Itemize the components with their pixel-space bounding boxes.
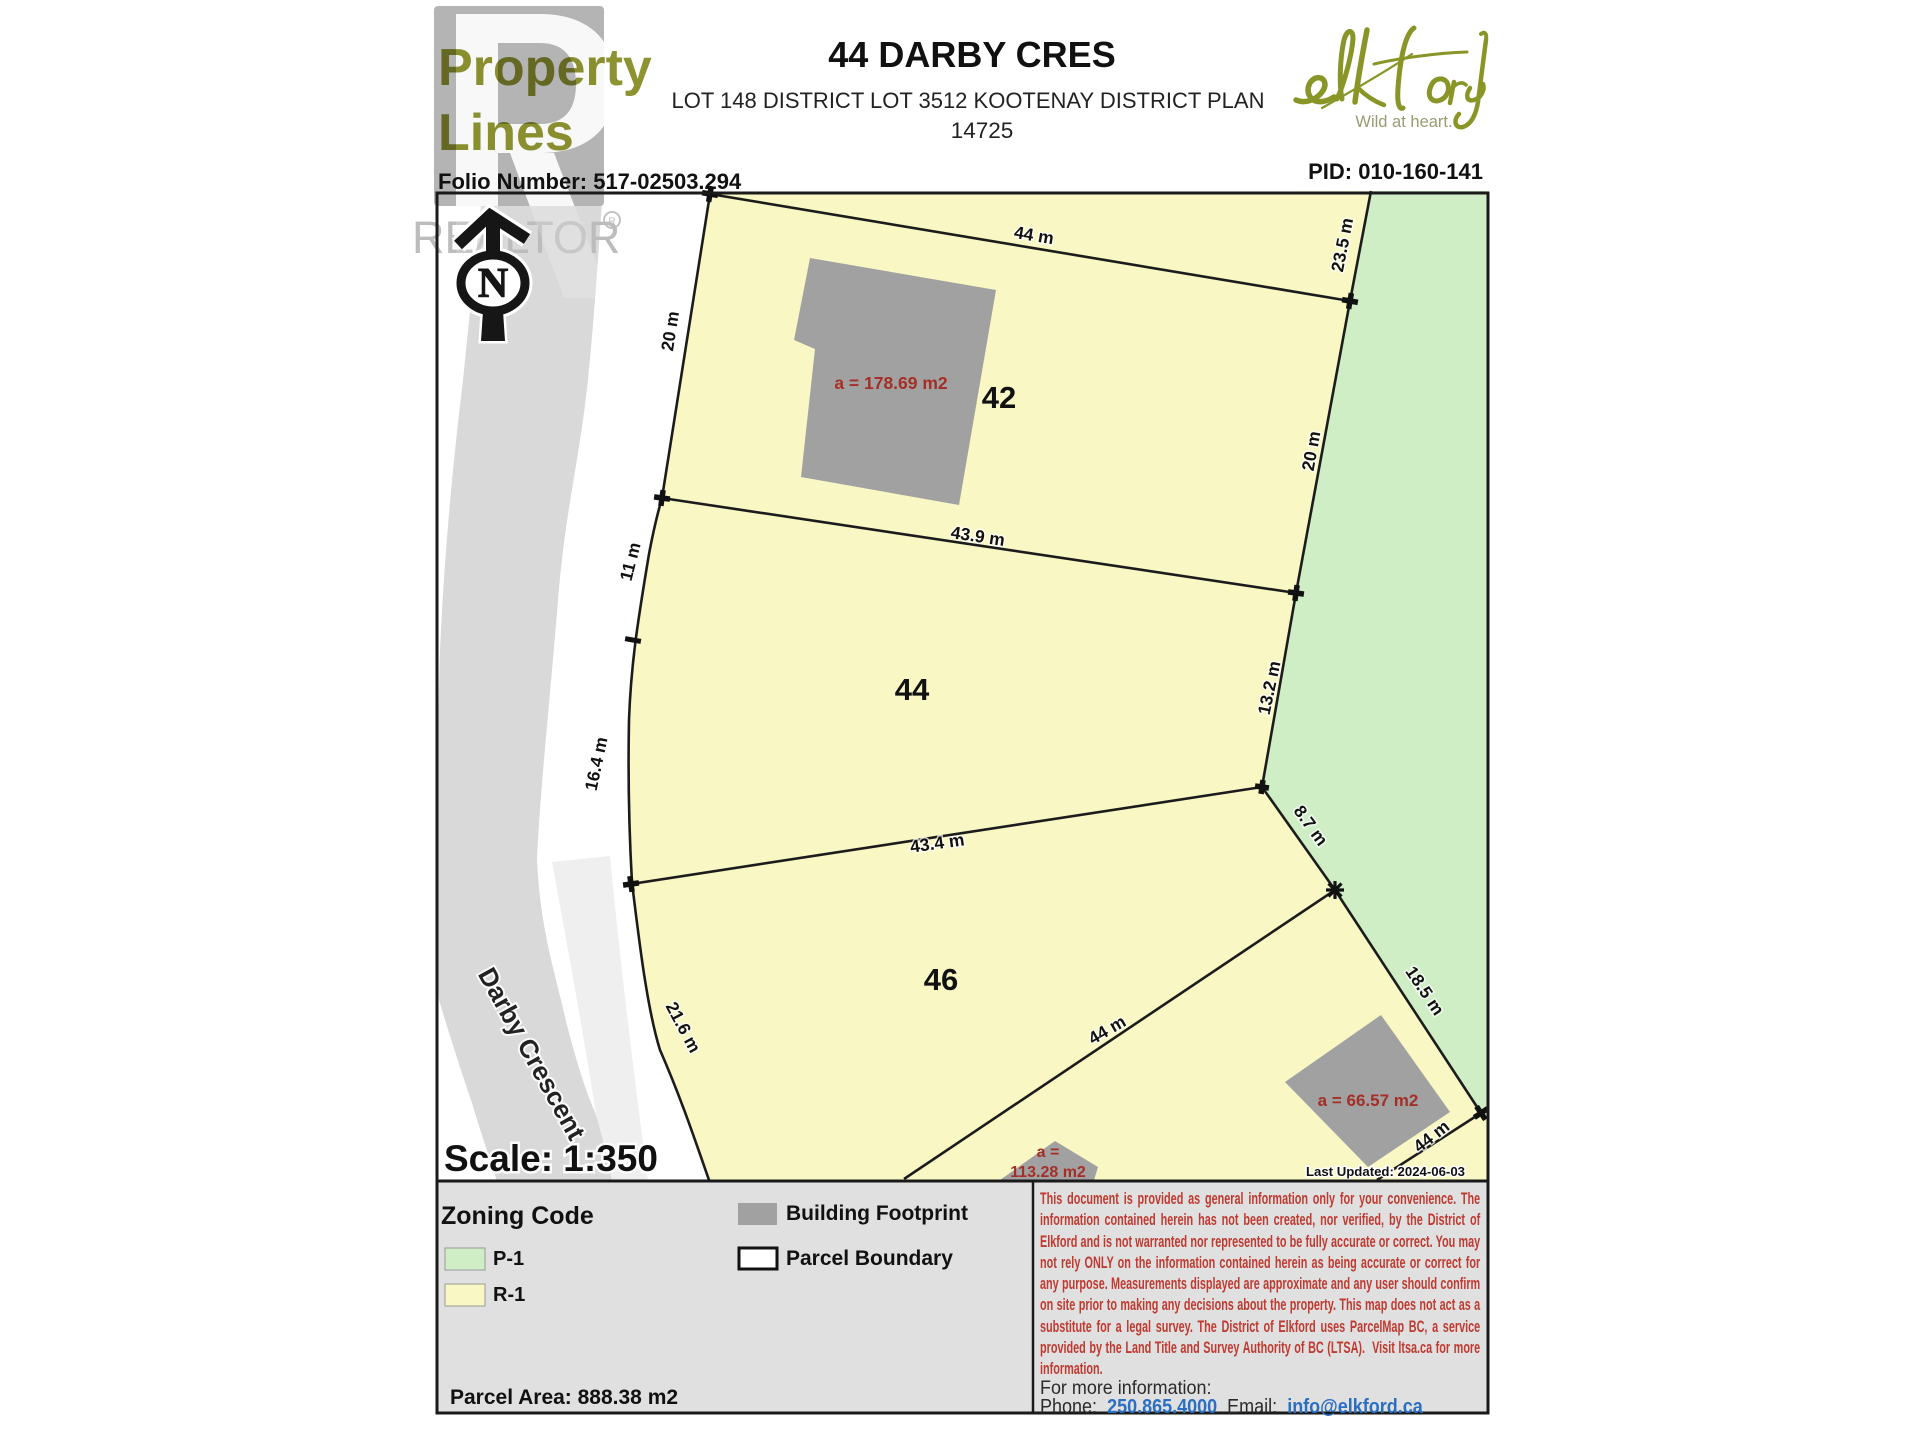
svg-text:11 m: 11 m [616,540,645,583]
svg-text:42: 42 [982,380,1016,415]
svg-text:46: 46 [924,962,958,997]
svg-text:a = 178.69 m2: a = 178.69 m2 [834,373,948,393]
svg-text:16.4 m: 16.4 m [581,735,612,792]
svg-text:R: R [608,217,615,228]
svg-text:44: 44 [895,672,930,707]
svg-text:Wild at heart.: Wild at heart. [1355,113,1452,131]
svg-text:20 m: 20 m [657,310,683,353]
svg-text:Scale: 1:350: Scale: 1:350 [444,1138,658,1179]
svg-text:a =: a = [1037,1144,1060,1161]
svg-text:a = 66.57 m2: a = 66.57 m2 [1318,1091,1419,1110]
svg-text:N: N [478,261,508,307]
svg-text:Last Updated: 2024-06-03: Last Updated: 2024-06-03 [1306,1164,1465,1179]
svg-text:113.28 m2: 113.28 m2 [1010,1164,1086,1181]
